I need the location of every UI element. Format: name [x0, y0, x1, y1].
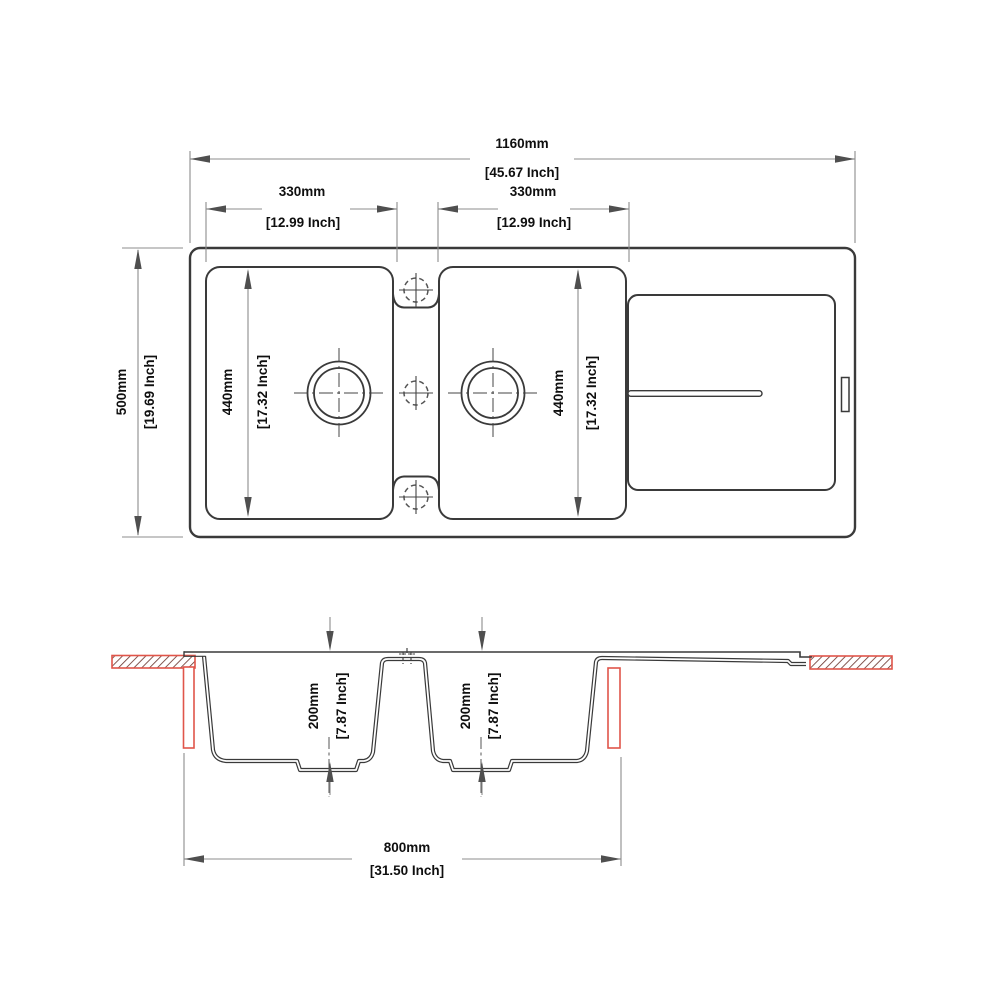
section-view: 200mm [7.87 Inch] 200mm [7.87 Inch] 800m…	[112, 617, 892, 878]
arrow-left	[190, 155, 210, 162]
arrow-down	[326, 631, 333, 651]
dim-overall-depth-inch: [19.69 Inch]	[142, 355, 157, 429]
dim-bowl2-width-mm: 330mm	[510, 184, 557, 199]
arrow-left	[206, 205, 226, 212]
countertop-section-right	[810, 656, 892, 669]
dim-overall-depth-mm: 500mm	[114, 369, 129, 416]
drainer-groove	[628, 391, 762, 397]
plan-view: 1160mm [45.67 Inch] 330mm [12.99 Inch] 3…	[114, 136, 855, 537]
arrow-down	[478, 631, 485, 651]
dim-bowl2-depth-mm: 200mm	[458, 683, 473, 730]
section-profile-inner	[204, 656, 806, 770]
dim-bowl1-depth-inch: [7.87 Inch]	[334, 673, 349, 740]
arrow-down	[134, 516, 141, 536]
dim-bowl1-depth-mm: 200mm	[306, 683, 321, 730]
arrow-right	[609, 205, 629, 212]
sink-technical-drawing: 1160mm [45.67 Inch] 330mm [12.99 Inch] 3…	[0, 0, 1000, 1000]
countertop-section-left	[112, 656, 195, 669]
tap-hole-section-dashes	[399, 648, 415, 664]
dim-cutout-width-mm: 800mm	[384, 840, 431, 855]
dim-bowl2-length-inch: [17.32 Inch]	[584, 356, 599, 430]
overflow-slot	[842, 378, 850, 412]
arrow-right	[377, 205, 397, 212]
dim-cutout-width: 800mm [31.50 Inch]	[184, 753, 621, 878]
drawing-svg: 1160mm [45.67 Inch] 330mm [12.99 Inch] 3…	[0, 0, 1000, 1000]
arrow-right	[601, 855, 621, 862]
arrow-left	[438, 205, 458, 212]
dim-cutout-width-inch: [31.50 Inch]	[370, 863, 444, 878]
arrow-right	[835, 155, 855, 162]
arrow-up	[134, 249, 141, 269]
dim-overall-depth: 500mm [19.69 Inch]	[114, 248, 183, 537]
dim-bowl2-depth-inch: [7.87 Inch]	[486, 673, 501, 740]
dim-bowl2-width-inch: [12.99 Inch]	[497, 215, 571, 230]
dim-bowl1-width-mm: 330mm	[279, 184, 326, 199]
dim-bowl1-length-inch: [17.32 Inch]	[255, 355, 270, 429]
arrow-left	[184, 855, 204, 862]
dim-overall-width-inch: [45.67 Inch]	[485, 165, 559, 180]
dim-bowl1-length-mm: 440mm	[220, 369, 235, 416]
fixing-clip-right	[608, 668, 620, 748]
section-rim-line	[184, 652, 812, 657]
dim-overall-width-mm: 1160mm	[495, 136, 548, 151]
dim-bowl2-length-mm: 440mm	[551, 370, 566, 417]
section-profile-outer	[204, 656, 806, 770]
fixing-clip-left	[184, 667, 195, 748]
dim-bowl1-width-inch: [12.99 Inch]	[266, 215, 340, 230]
